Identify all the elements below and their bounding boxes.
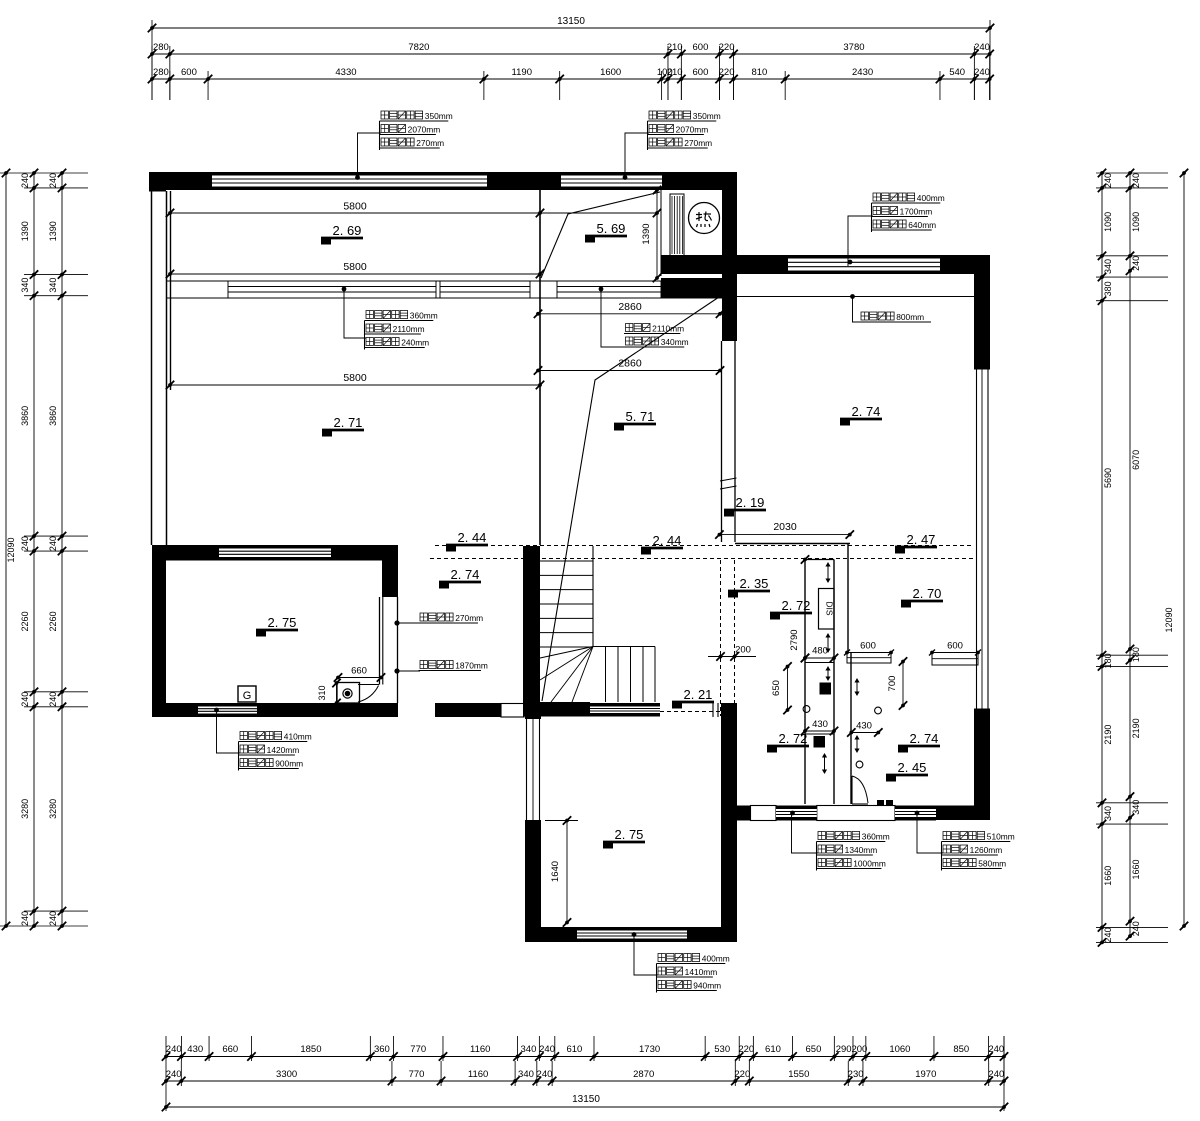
svg-text:280: 280 xyxy=(153,42,169,53)
svg-text:240: 240 xyxy=(20,173,30,188)
svg-text:240: 240 xyxy=(988,1044,1004,1055)
svg-text:340: 340 xyxy=(20,278,30,293)
svg-text:240: 240 xyxy=(1131,921,1141,936)
svg-text:240: 240 xyxy=(1131,173,1141,188)
svg-text:3860: 3860 xyxy=(48,406,58,426)
svg-text:340: 340 xyxy=(48,278,58,293)
svg-text:240: 240 xyxy=(48,692,58,707)
svg-text:2260: 2260 xyxy=(20,611,30,631)
svg-text:220: 220 xyxy=(719,67,735,78)
svg-text:3860: 3860 xyxy=(20,406,30,426)
svg-text:2. 74: 2. 74 xyxy=(451,567,480,582)
svg-text:2. 19: 2. 19 xyxy=(736,495,765,510)
svg-text:240: 240 xyxy=(537,1069,553,1080)
svg-text:240: 240 xyxy=(539,1044,555,1055)
svg-text:240: 240 xyxy=(1131,256,1141,271)
svg-text:2430: 2430 xyxy=(852,67,873,78)
svg-text:270mm: 270mm xyxy=(684,138,712,148)
svg-text:2860: 2860 xyxy=(618,358,642,370)
svg-text:340: 340 xyxy=(518,1069,534,1080)
svg-text:770: 770 xyxy=(409,1069,425,1080)
svg-text:430: 430 xyxy=(812,719,828,730)
svg-text:770: 770 xyxy=(410,1044,426,1055)
svg-text:360: 360 xyxy=(374,1044,390,1055)
svg-text:2070mm: 2070mm xyxy=(676,125,709,135)
svg-text:580mm: 580mm xyxy=(978,859,1006,869)
svg-text:5. 69: 5. 69 xyxy=(597,221,626,236)
svg-text:3280: 3280 xyxy=(48,799,58,819)
svg-text:DIS: DIS xyxy=(825,601,835,616)
svg-text:1190: 1190 xyxy=(512,67,532,78)
svg-text:1600: 1600 xyxy=(600,67,621,78)
svg-text:650: 650 xyxy=(771,680,782,696)
svg-text:2860: 2860 xyxy=(618,301,642,313)
svg-text:1090: 1090 xyxy=(1131,212,1141,232)
svg-text:240: 240 xyxy=(1103,173,1113,188)
svg-text:2. 44: 2. 44 xyxy=(653,533,682,548)
svg-text:2190: 2190 xyxy=(1103,725,1113,745)
svg-text:280: 280 xyxy=(153,67,169,78)
svg-text:1850: 1850 xyxy=(300,1044,321,1055)
svg-text:180: 180 xyxy=(1103,653,1113,668)
svg-text:2. 71: 2. 71 xyxy=(334,415,363,430)
svg-text:2. 70: 2. 70 xyxy=(913,586,942,601)
svg-text:350mm: 350mm xyxy=(425,111,453,121)
svg-text:3780: 3780 xyxy=(843,42,864,53)
svg-text:240: 240 xyxy=(48,911,58,926)
svg-text:2. 75: 2. 75 xyxy=(615,827,644,842)
svg-text:290: 290 xyxy=(836,1044,852,1055)
svg-text:240: 240 xyxy=(20,911,30,926)
svg-text:2790: 2790 xyxy=(789,629,800,650)
svg-text:5800: 5800 xyxy=(343,261,367,273)
svg-text:2. 75: 2. 75 xyxy=(268,615,297,630)
svg-text:240: 240 xyxy=(974,67,990,78)
svg-text:240: 240 xyxy=(988,1069,1004,1080)
svg-text:650: 650 xyxy=(806,1044,822,1055)
svg-text:800mm: 800mm xyxy=(896,312,924,322)
svg-text:1660: 1660 xyxy=(1131,859,1141,879)
svg-text:1390: 1390 xyxy=(20,221,30,241)
svg-text:480: 480 xyxy=(812,646,828,657)
svg-text:1160: 1160 xyxy=(468,1069,488,1080)
svg-text:540: 540 xyxy=(949,67,965,78)
svg-text:200: 200 xyxy=(851,1044,867,1055)
svg-text:210: 210 xyxy=(667,67,683,78)
svg-text:640mm: 640mm xyxy=(908,220,936,230)
svg-text:200: 200 xyxy=(735,645,751,656)
svg-text:240: 240 xyxy=(974,42,990,53)
svg-text:4330: 4330 xyxy=(335,67,356,78)
svg-text:1160: 1160 xyxy=(470,1044,490,1055)
svg-text:270mm: 270mm xyxy=(416,138,444,148)
svg-text:1340mm: 1340mm xyxy=(845,845,878,855)
svg-text:G: G xyxy=(243,690,252,702)
svg-text:240: 240 xyxy=(1103,927,1113,942)
svg-text:270mm: 270mm xyxy=(455,613,483,623)
svg-text:13150: 13150 xyxy=(557,16,585,27)
svg-text:1700mm: 1700mm xyxy=(900,207,933,217)
svg-text:340: 340 xyxy=(1103,806,1113,821)
svg-text:360mm: 360mm xyxy=(862,832,890,842)
svg-text:940mm: 940mm xyxy=(693,981,721,991)
svg-text:2. 72: 2. 72 xyxy=(779,731,808,746)
svg-text:2110mm: 2110mm xyxy=(652,324,684,334)
svg-text:660: 660 xyxy=(351,666,367,677)
svg-text:240: 240 xyxy=(48,536,58,551)
svg-text:240: 240 xyxy=(20,536,30,551)
svg-text:2870: 2870 xyxy=(633,1069,654,1080)
svg-text:660: 660 xyxy=(222,1044,238,1055)
svg-text:410mm: 410mm xyxy=(284,732,312,742)
svg-text:380: 380 xyxy=(1103,281,1113,296)
svg-text:600: 600 xyxy=(181,67,197,78)
svg-text:1420mm: 1420mm xyxy=(267,745,300,755)
svg-text:2. 74: 2. 74 xyxy=(910,731,939,746)
svg-text:400mm: 400mm xyxy=(917,193,945,203)
svg-text:2070mm: 2070mm xyxy=(408,125,441,135)
svg-text:400mm: 400mm xyxy=(702,954,730,964)
svg-text:340mm: 340mm xyxy=(661,337,689,347)
svg-text:610: 610 xyxy=(566,1044,582,1055)
svg-text:5800: 5800 xyxy=(343,372,367,384)
svg-text:2110mm: 2110mm xyxy=(393,324,425,334)
svg-text:220: 220 xyxy=(719,42,735,53)
svg-text:360mm: 360mm xyxy=(410,311,438,321)
svg-text:2. 21: 2. 21 xyxy=(684,687,713,702)
svg-text:340: 340 xyxy=(521,1044,537,1055)
svg-text:5690: 5690 xyxy=(1103,468,1113,488)
svg-text:3280: 3280 xyxy=(20,799,30,819)
svg-text:1000mm: 1000mm xyxy=(853,859,886,869)
svg-text:2. 74: 2. 74 xyxy=(852,404,881,419)
svg-text:12090: 12090 xyxy=(1164,607,1174,632)
svg-text:700: 700 xyxy=(887,676,898,692)
svg-text:1640: 1640 xyxy=(550,861,561,882)
svg-text:1970: 1970 xyxy=(915,1069,936,1080)
svg-text:810: 810 xyxy=(751,67,767,78)
svg-text:600: 600 xyxy=(693,42,709,53)
svg-text:1730: 1730 xyxy=(639,1044,660,1055)
svg-text:240mm: 240mm xyxy=(401,338,429,348)
svg-text:1870mm: 1870mm xyxy=(455,661,488,671)
svg-text:2. 45: 2. 45 xyxy=(898,760,927,775)
svg-text:530: 530 xyxy=(714,1044,730,1055)
svg-text:1390: 1390 xyxy=(48,221,58,241)
svg-text:2. 47: 2. 47 xyxy=(907,532,936,547)
svg-text:1390: 1390 xyxy=(641,223,652,244)
svg-text:220: 220 xyxy=(738,1044,754,1055)
svg-text:1550: 1550 xyxy=(788,1069,809,1080)
svg-text:230: 230 xyxy=(848,1069,864,1080)
svg-text:340: 340 xyxy=(1103,259,1113,274)
svg-text:600: 600 xyxy=(693,67,709,78)
svg-text:1660: 1660 xyxy=(1103,866,1113,886)
svg-text:2190: 2190 xyxy=(1131,718,1141,738)
svg-text:2030: 2030 xyxy=(773,521,797,533)
svg-text:2. 69: 2. 69 xyxy=(333,223,362,238)
svg-text:220: 220 xyxy=(734,1069,750,1080)
svg-text:2. 44: 2. 44 xyxy=(458,530,487,545)
svg-text:240: 240 xyxy=(166,1069,182,1080)
svg-text:1260mm: 1260mm xyxy=(970,845,1003,855)
svg-text:600: 600 xyxy=(947,641,963,652)
svg-text:3300: 3300 xyxy=(276,1069,297,1080)
svg-text:7820: 7820 xyxy=(408,42,429,53)
svg-text:2. 72: 2. 72 xyxy=(782,598,811,613)
svg-text:180: 180 xyxy=(1131,647,1141,662)
svg-text:310: 310 xyxy=(317,685,327,700)
svg-text:350mm: 350mm xyxy=(693,111,721,121)
svg-text:340: 340 xyxy=(1131,800,1141,815)
svg-text:240: 240 xyxy=(48,173,58,188)
svg-text:600: 600 xyxy=(860,641,876,652)
svg-text:240: 240 xyxy=(166,1044,182,1055)
svg-text:5. 71: 5. 71 xyxy=(626,409,655,424)
svg-text:240: 240 xyxy=(20,692,30,707)
svg-text:510mm: 510mm xyxy=(987,832,1015,842)
svg-text:13150: 13150 xyxy=(572,1094,600,1105)
svg-text:430: 430 xyxy=(856,721,872,732)
svg-text:850: 850 xyxy=(953,1044,969,1055)
svg-text:210: 210 xyxy=(667,42,683,53)
svg-text:610: 610 xyxy=(765,1044,781,1055)
svg-text:430: 430 xyxy=(187,1044,203,1055)
svg-text:6070: 6070 xyxy=(1131,450,1141,470)
svg-text:900mm: 900mm xyxy=(275,759,303,769)
svg-text:5800: 5800 xyxy=(343,201,367,213)
svg-text:1060: 1060 xyxy=(889,1044,910,1055)
svg-text:12090: 12090 xyxy=(6,537,16,562)
svg-text:2. 35: 2. 35 xyxy=(740,576,769,591)
svg-text:2260: 2260 xyxy=(48,611,58,631)
svg-text:1090: 1090 xyxy=(1103,212,1113,232)
svg-text:1410mm: 1410mm xyxy=(685,967,718,977)
